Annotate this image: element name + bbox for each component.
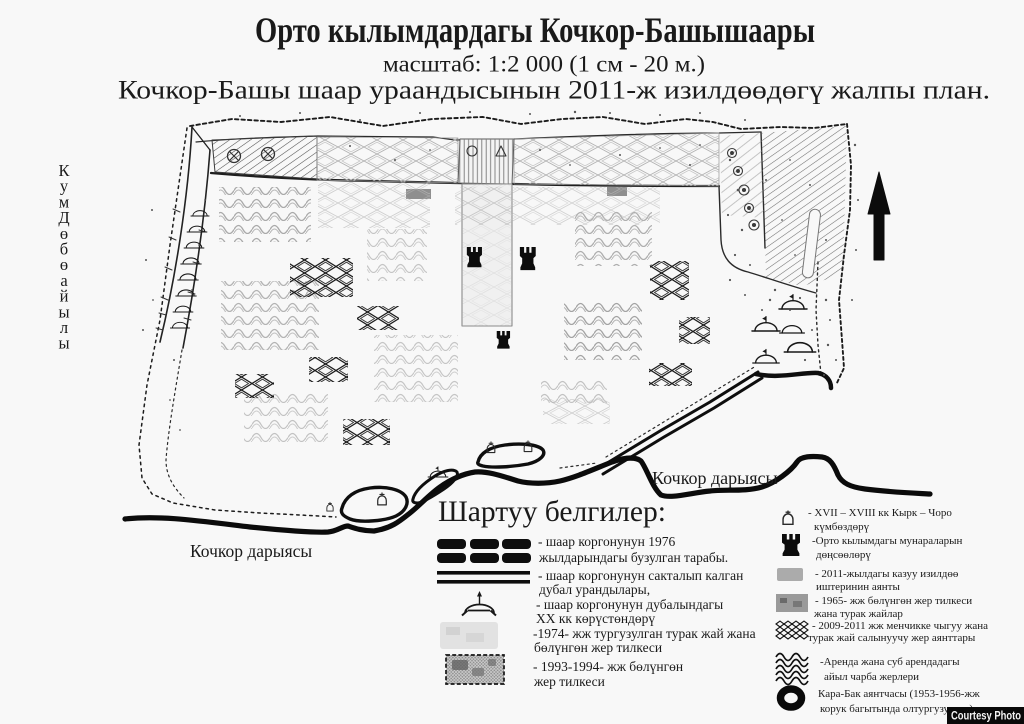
svg-text:-1974- жж тургузулган турак жа: -1974- жж тургузулган турак жай жана bbox=[533, 626, 756, 641]
svg-text:күмбөздөрү: күмбөздөрү bbox=[814, 521, 870, 533]
svg-text:Шартуу белгилер:: Шартуу белгилер: bbox=[438, 495, 666, 528]
svg-text:ХХ кк көрүстөндөрү: ХХ кк көрүстөндөрү bbox=[536, 611, 655, 626]
svg-text:- шаар коргонунун сакталып кал: - шаар коргонунун сакталып калган bbox=[538, 568, 743, 583]
svg-text:дубал урандылары,: дубал урандылары, bbox=[539, 582, 650, 597]
svg-text:Кочкор-Башы шаар ураандысынын: Кочкор-Башы шаар ураандысынын 2011-ж изи… bbox=[118, 76, 990, 105]
svg-text:турак жай салынуучу жер аянтта: турак жай салынуучу жер аянттары bbox=[808, 632, 976, 644]
svg-text:айыл чарба жерлери: айыл чарба жерлери bbox=[824, 671, 919, 683]
svg-text:Орто кылымдардагы Кочкор-Башы: Орто кылымдардагы Кочкор-Башышаары bbox=[255, 10, 815, 50]
svg-text:- 1993-1994- жж бөлүнгөн: - 1993-1994- жж бөлүнгөн bbox=[533, 659, 683, 674]
svg-text:жана турак жайлар: жана турак жайлар bbox=[813, 608, 903, 620]
svg-text:масштаб: 1:2 000 (1 см - 20 м.: масштаб: 1:2 000 (1 см - 20 м.) bbox=[383, 52, 705, 77]
svg-text:Кочкор дарыясы: Кочкор дарыясы bbox=[190, 541, 312, 561]
svg-text:дөңсөөлөрү: дөңсөөлөрү bbox=[816, 549, 871, 561]
svg-text:-Орто кылымдагы мунараларын: -Орто кылымдагы мунараларын bbox=[812, 535, 963, 547]
svg-text:- шаар коргонунун 1976: - шаар коргонунун 1976 bbox=[538, 534, 675, 549]
svg-text:жер тилкеси: жер тилкеси bbox=[533, 674, 605, 689]
svg-text:- 2011-жылдагы казуу изилдөө: - 2011-жылдагы казуу изилдөө bbox=[815, 568, 959, 580]
svg-text:жылдарындагы бузулган тарабы.: жылдарындагы бузулган тарабы. bbox=[538, 550, 728, 565]
svg-text:- 1965- жж бөлүнгөн жер тилкес: - 1965- жж бөлүнгөн жер тилкеси bbox=[815, 595, 972, 607]
svg-text:бөлүнгөн жер тилкеси: бөлүнгөн жер тилкеси bbox=[534, 640, 662, 655]
svg-text:- шаар коргонунун дубалындагы: - шаар коргонунун дубалындагы bbox=[536, 597, 723, 612]
svg-text:-Аренда жана суб арендадагы: -Аренда жана суб арендадагы bbox=[820, 656, 960, 668]
svg-text:Courtesy Photo: Courtesy Photo bbox=[951, 711, 1021, 723]
svg-text:Кара-Бак аянтчасы (1953-1956-ж: Кара-Бак аянтчасы (1953-1956-жж bbox=[818, 688, 980, 700]
svg-text:- 2009-2011 жж менчикке чыгуу: - 2009-2011 жж менчикке чыгуу жана bbox=[812, 620, 988, 632]
svg-text:иштеринин аянты: иштеринин аянты bbox=[816, 581, 900, 593]
svg-text:- XVII – XVIII кк Кырк – Чоро: - XVII – XVIII кк Кырк – Чоро bbox=[808, 507, 952, 519]
svg-text:Кочкор дарыясы: Кочкор дарыясы bbox=[652, 468, 778, 488]
